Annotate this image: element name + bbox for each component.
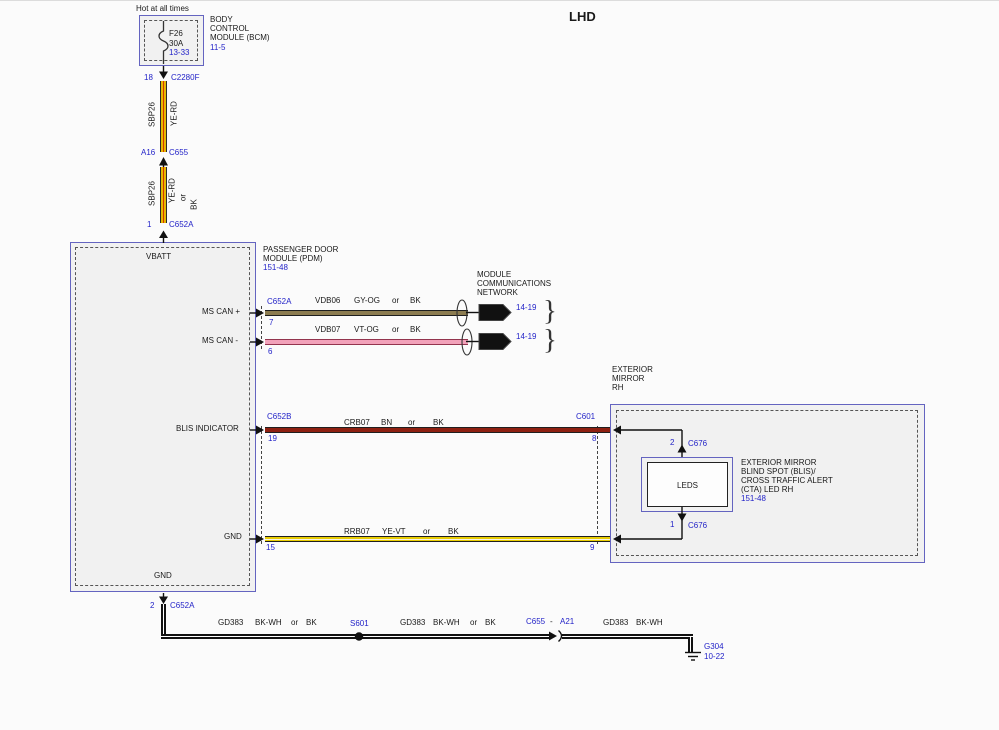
fuse-rating: 30A — [169, 39, 183, 48]
wire-circuit-label: VDB06 — [315, 296, 340, 305]
wire-circuit-label: CRB07 — [344, 418, 370, 427]
network-page-ref[interactable]: 14-19 — [516, 303, 536, 312]
wire-sbp26-segment1 — [160, 81, 167, 152]
pdm-page-ref[interactable]: 151-48 — [263, 263, 288, 272]
brace-glyph: } — [543, 297, 557, 326]
wire-alt-color-label: BK — [410, 296, 421, 305]
c655-pin-number: A16 — [141, 148, 155, 157]
wire-gd383-segment1 — [161, 634, 549, 639]
connector-c601-dashed-line — [597, 426, 598, 544]
wire-color-label: BN — [381, 418, 392, 427]
pdm-gnd-bottom-label: GND — [154, 571, 172, 580]
led-pin-bottom: 1 — [670, 520, 674, 529]
wire-circuit-label: GD383 — [218, 618, 243, 627]
network-label-line1: MODULE — [477, 270, 511, 279]
network-label-line3: NETWORK — [477, 288, 518, 297]
inline-connector-dash: - — [550, 617, 553, 626]
wire-color-label: GY-OG — [354, 296, 380, 305]
brace-glyph: } — [543, 326, 557, 355]
bcm-pin-number: 18 — [144, 73, 153, 82]
wire-or-label: or — [291, 618, 298, 627]
pdm-in-pin-number: 1 — [147, 220, 151, 229]
fuse-page-ref[interactable]: 13-33 — [169, 48, 189, 57]
can-minus-pin-number: 6 — [268, 347, 272, 356]
wire-alt-color-label: BK — [306, 618, 317, 627]
gnd-pin-right: 9 — [590, 543, 594, 552]
wire-color-label: BK-WH — [636, 618, 663, 627]
ground-icon — [685, 653, 701, 661]
pdm-name-line2: MODULE (PDM) — [263, 254, 323, 263]
mirror-desc-line4: (CTA) LED RH — [741, 485, 793, 494]
wire-alt-color-label: BK — [410, 325, 421, 334]
wire-color-label: BK-WH — [255, 618, 282, 627]
blis-pin-right: 8 — [592, 434, 596, 443]
led-pin-top: 2 — [670, 438, 674, 447]
mirror-name-line3: RH — [612, 383, 624, 392]
inline-connector-name[interactable]: C655 — [526, 617, 545, 626]
pdm-blis-indicator-label: BLIS INDICATOR — [176, 424, 239, 433]
inline-connector-pin: A21 — [560, 617, 574, 626]
wire-or-label: or — [392, 325, 399, 334]
connector-c652a-dashed-line — [261, 306, 262, 349]
led-connector-bottom[interactable]: C676 — [688, 521, 707, 530]
wire-color-label: BK-WH — [433, 618, 460, 627]
wire-crb07 — [265, 427, 610, 433]
twisted-pair-icon — [457, 300, 472, 355]
wire-circuit-label: RRB07 — [344, 527, 370, 536]
wire-or-label: or — [470, 618, 477, 627]
wire-rrb07 — [265, 536, 610, 542]
mirror-desc-line1: EXTERIOR MIRROR — [741, 458, 817, 467]
hot-at-all-times-label: Hot at all times — [136, 4, 189, 13]
inline-connector-icon — [549, 631, 562, 642]
wire-gd383-drop — [688, 637, 693, 652]
splice-name[interactable]: S601 — [350, 619, 369, 628]
wire-sbp26-segment2 — [160, 167, 167, 223]
pdm-vbatt-label: VBATT — [146, 252, 171, 261]
bcm-connector-name[interactable]: C2280F — [171, 73, 199, 82]
wire-or-label: or — [179, 188, 188, 208]
can-plus-pin-number: 7 — [269, 318, 273, 327]
connector-c652b-dashed-line — [261, 426, 262, 544]
blis-connector-name-left[interactable]: C652B — [267, 412, 291, 421]
pdm-ms-can-minus-label: MS CAN - — [202, 336, 238, 345]
mirror-name-line1: EXTERIOR — [612, 365, 653, 374]
wire-color-label: YE-RD — [170, 94, 179, 134]
can-connector-name[interactable]: C652A — [267, 297, 291, 306]
wire-alt-color-label: BK — [433, 418, 444, 427]
wire-circuit-label: GD383 — [400, 618, 425, 627]
c655-connector-name[interactable]: C655 — [169, 148, 188, 157]
pdm-ms-can-plus-label: MS CAN + — [202, 307, 240, 316]
wire-vdb06 — [265, 310, 468, 316]
fuse-name: F26 — [169, 29, 183, 38]
off-page-connector-icon — [466, 334, 511, 350]
wire-circuit-label: SBP26 — [148, 174, 157, 214]
led-connector-top[interactable]: C676 — [688, 439, 707, 448]
bcm-name-line2: CONTROL — [210, 24, 249, 33]
pdm-name-line1: PASSENGER DOOR — [263, 245, 338, 254]
wire-gd383-segment2 — [562, 634, 693, 639]
bcm-name-line3: MODULE (BCM) — [210, 33, 270, 42]
ground-page-ref[interactable]: 10-22 — [704, 652, 724, 661]
wire-circuit-label: VDB07 — [315, 325, 340, 334]
network-label-line2: COMMUNICATIONS — [477, 279, 551, 288]
page-title: LHD — [569, 10, 596, 24]
pdm-in-connector-name[interactable]: C652A — [169, 220, 193, 229]
wire-alt-color-label: BK — [190, 195, 199, 215]
wire-gd383-vertical — [161, 604, 166, 636]
arrow-down-icon — [159, 66, 168, 79]
wire-circuit-label: SBP26 — [148, 95, 157, 135]
gnd-pin-left: 15 — [266, 543, 275, 552]
gnd-out-connector[interactable]: C652A — [170, 601, 194, 610]
wiring-diagram-page: LHD Hot at all times F26 30A 13-33 BODY … — [0, 0, 999, 730]
ground-name[interactable]: G304 — [704, 642, 724, 651]
leds-label: LEDS — [647, 481, 728, 490]
network-page-ref[interactable]: 14-19 — [516, 332, 536, 341]
bcm-name-line1: BODY — [210, 15, 233, 24]
off-page-connector-icon — [466, 305, 511, 321]
wire-vdb07 — [265, 339, 468, 345]
wire-alt-color-label: BK — [485, 618, 496, 627]
arrow-up-icon — [159, 157, 168, 167]
arrow-down-icon — [159, 593, 168, 604]
blis-connector-name-right[interactable]: C601 — [576, 412, 595, 421]
wire-or-label: or — [423, 527, 430, 536]
wire-alt-color-label: BK — [448, 527, 459, 536]
pdm-gnd-label: GND — [224, 532, 242, 541]
wire-color-label: YE-RD — [168, 171, 177, 211]
wire-circuit-label: GD383 — [603, 618, 628, 627]
gnd-out-pin: 2 — [150, 601, 154, 610]
mirror-page-ref[interactable]: 151-48 — [741, 494, 766, 503]
mirror-desc-line2: BLIND SPOT (BLIS)/ — [741, 467, 816, 476]
mirror-name-line2: MIRROR — [612, 374, 644, 383]
wire-or-label: or — [392, 296, 399, 305]
wire-color-label: YE-VT — [382, 527, 406, 536]
bcm-page-ref[interactable]: 11-5 — [210, 43, 225, 52]
mirror-desc-line3: CROSS TRAFFIC ALERT — [741, 476, 833, 485]
wire-or-label: or — [408, 418, 415, 427]
blis-pin-left: 19 — [268, 434, 277, 443]
wire-color-label: VT-OG — [354, 325, 379, 334]
